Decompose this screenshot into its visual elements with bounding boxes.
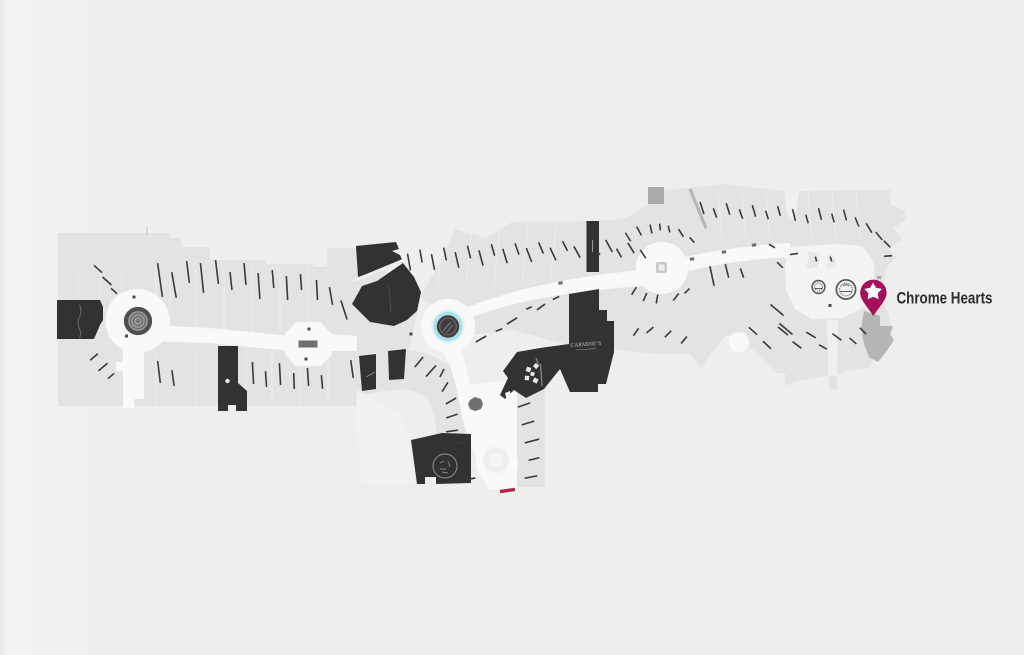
svg-text:Chrome Hearts: Chrome Hearts	[897, 290, 993, 308]
